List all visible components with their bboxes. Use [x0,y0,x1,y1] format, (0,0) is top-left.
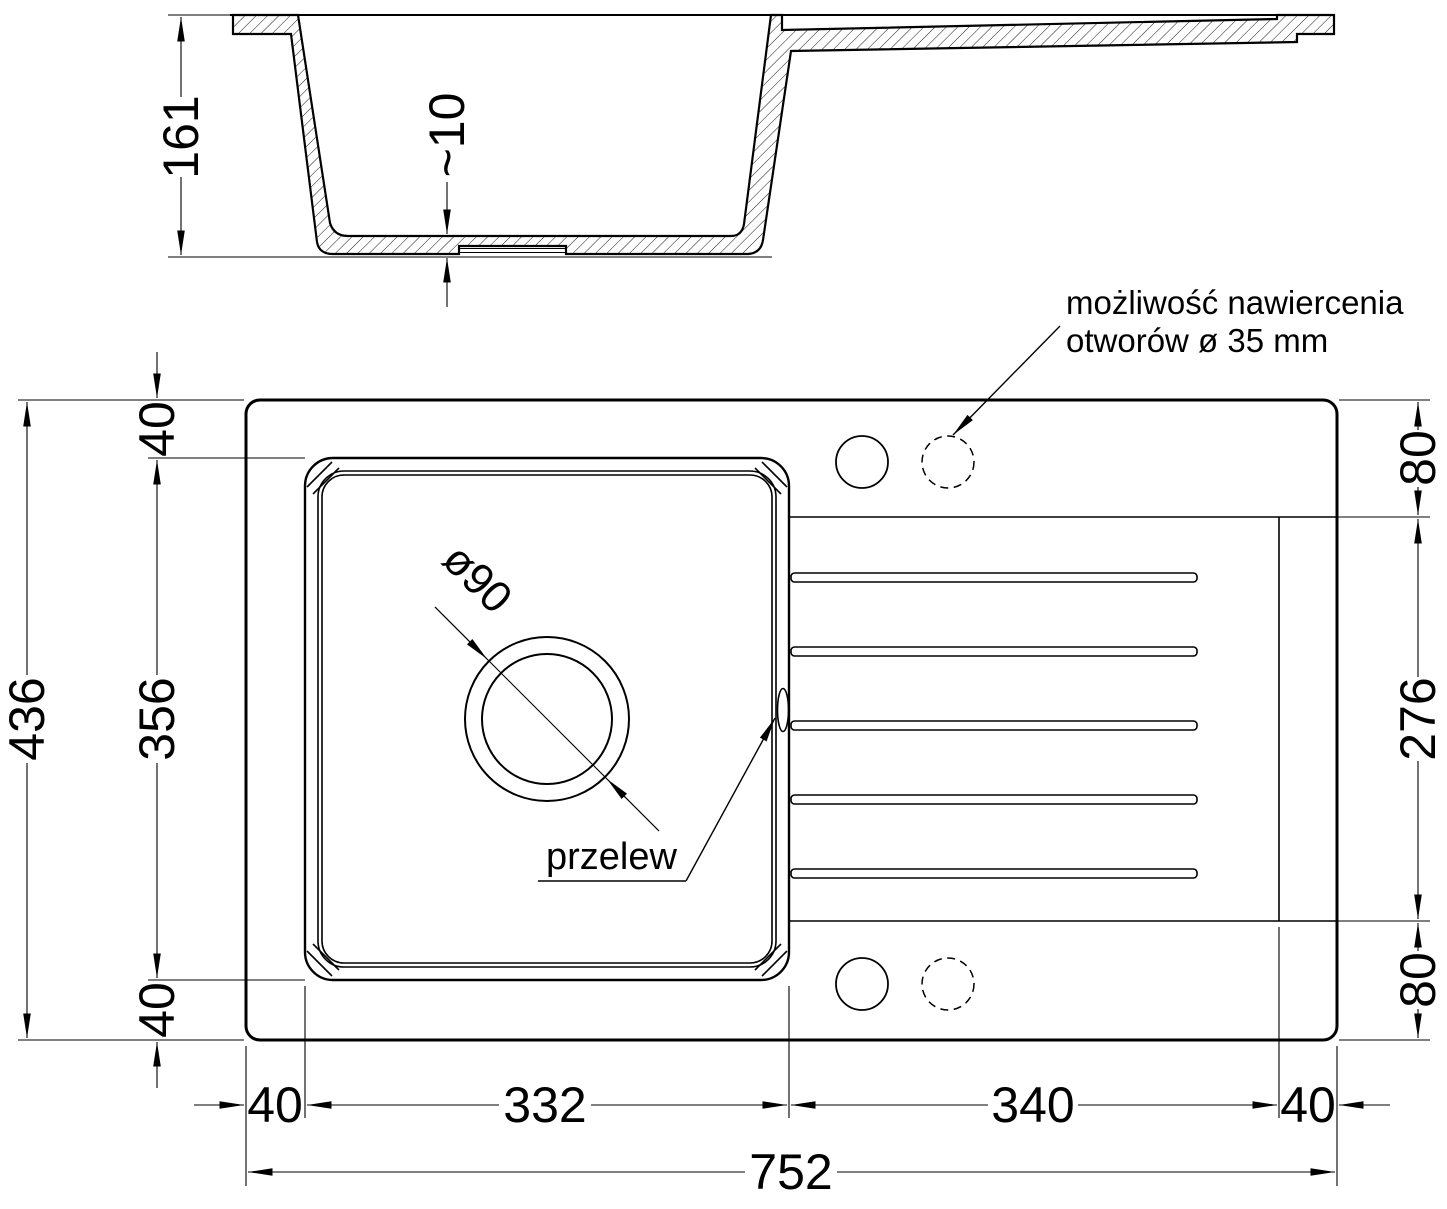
tap-hole-top [836,436,888,488]
dim-bottom-right-margin-label: 40 [1280,1077,1336,1133]
dim-total-width-group: 752 [248,1144,1335,1200]
dim-bottom-thickness-label: ~10 [419,93,475,178]
note-line-1: możliwość nawiercenia [1066,284,1404,321]
dim-depth-label: 161 [153,95,209,178]
section-view: 161 ~10 [153,15,1334,307]
dim-drainer-length-label: 276 [1390,677,1446,760]
sink-dimension-drawing: 161 ~10 ø90 [0,0,1447,1209]
dim-left-top-margin-label: 40 [129,401,185,457]
dim-right-top-offset-label: 80 [1390,430,1446,486]
drainer-groove [791,647,1197,656]
drainer-groove [791,795,1197,804]
drainer-groove [791,869,1197,878]
section-profile-hatched [233,15,1334,254]
countertop-outline [246,400,1337,1040]
dim-bowl-width-label: 332 [503,1077,586,1133]
dim-total-depth-group: 436 [0,402,55,1038]
note-line-2: otworów ø 35 mm [1066,322,1328,359]
dim-bottom-chain-group: 40 332 340 40 [194,1077,1390,1133]
dim-total-depth-label: 436 [0,677,55,760]
dim-left-chain-group: 40 356 40 [129,352,185,1088]
overflow-callout: przelew [538,718,775,881]
dim-drainer-width-label: 340 [991,1077,1074,1133]
dim-bowl-length-label: 356 [129,677,185,760]
optional-tap-hole-top [922,436,974,488]
overflow-hole [778,689,789,732]
dim-total-width-label: 752 [749,1144,832,1200]
dim-bottom-left-margin-label: 40 [247,1077,303,1133]
technical-drawing-sheet: 161 ~10 ø90 [0,0,1447,1209]
dim-depth-group: 161 [153,17,209,255]
optional-tap-hole-bottom [922,958,974,1010]
dim-right-bottom-offset-label: 80 [1390,952,1446,1008]
tap-hole-bottom [836,958,888,1010]
dim-drain-diameter-group: ø90 [433,535,659,831]
drainer-groove [791,721,1197,730]
dim-right-chain-group: 80 276 80 [1390,402,1446,1038]
dim-drain-diameter-label: ø90 [433,535,521,623]
extension-lines [18,400,1430,1186]
drainer-grooves [791,573,1197,878]
overflow-label: przelew [546,836,677,878]
plan-view: ø90 przelew możliwość nawiercenia otwor [0,284,1446,1200]
dim-bottom-thickness-group: ~10 [419,93,475,307]
dim-left-bottom-margin-label: 40 [129,982,185,1038]
drainer-groove [791,573,1197,582]
